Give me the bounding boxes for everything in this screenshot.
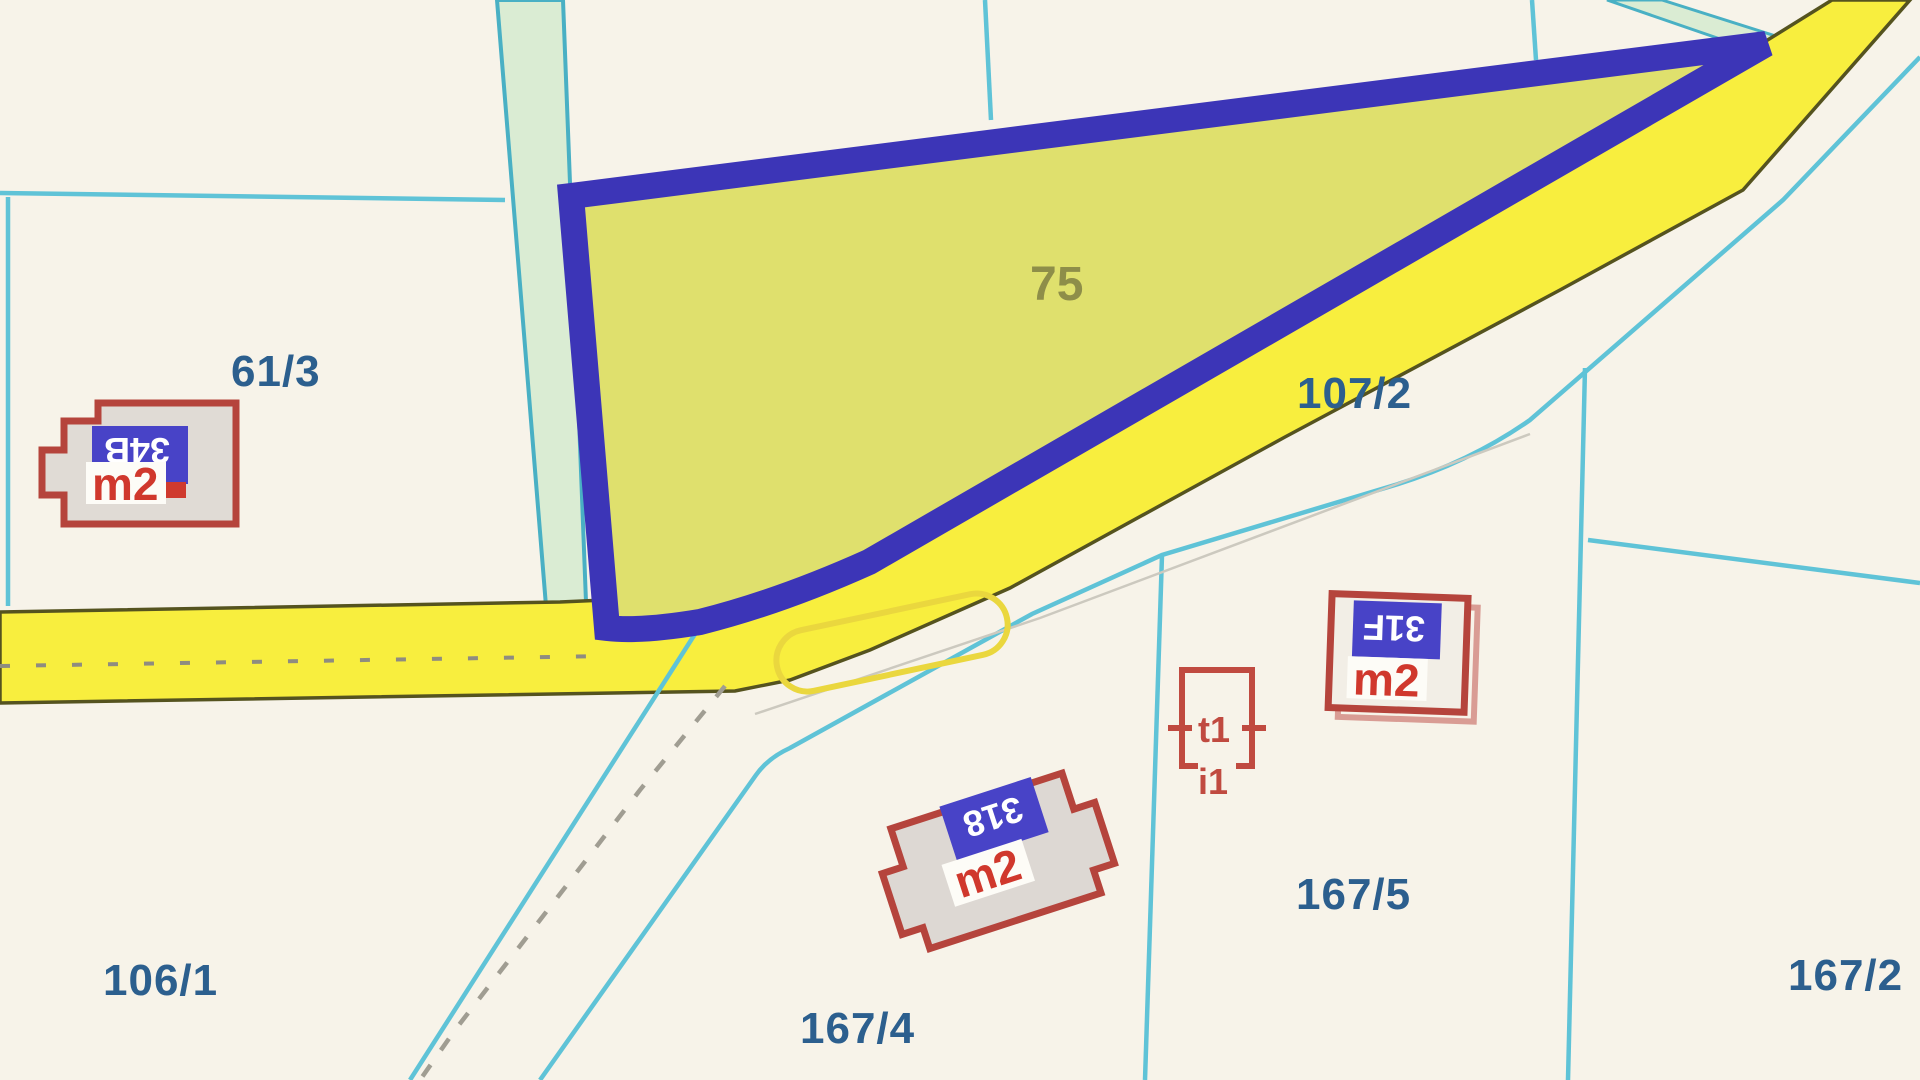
parcel-label-167-4: 167/4 xyxy=(800,1004,915,1053)
building-symbol-31F[interactable]: 31F m2 xyxy=(1328,594,1478,722)
building-symbol-34B[interactable]: 34B m2 xyxy=(42,403,236,524)
parcel-label-61-3: 61/3 xyxy=(231,347,321,396)
structure-label-t1: t1 xyxy=(1198,709,1230,750)
map-canvas[interactable]: 75 61/3 107/2 106/1 167/4 167/5 167/2 34… xyxy=(0,0,1920,1080)
parcel-label-167-5: 167/5 xyxy=(1296,870,1411,919)
badge-corner-mark xyxy=(166,482,186,498)
parcel-label-107-2: 107/2 xyxy=(1297,369,1412,418)
area-unit-label: m2 xyxy=(1352,652,1420,706)
area-unit-label: m2 xyxy=(92,458,158,510)
selected-parcel-number: 75 xyxy=(1030,258,1083,311)
cadastral-map[interactable]: 75 61/3 107/2 106/1 167/4 167/5 167/2 34… xyxy=(0,0,1920,1080)
parcel-label-106-1: 106/1 xyxy=(103,956,218,1005)
parcel-label-167-2: 167/2 xyxy=(1788,951,1903,1000)
building-number-label: 31F xyxy=(1362,607,1425,650)
structure-label-i1: i1 xyxy=(1198,761,1228,802)
